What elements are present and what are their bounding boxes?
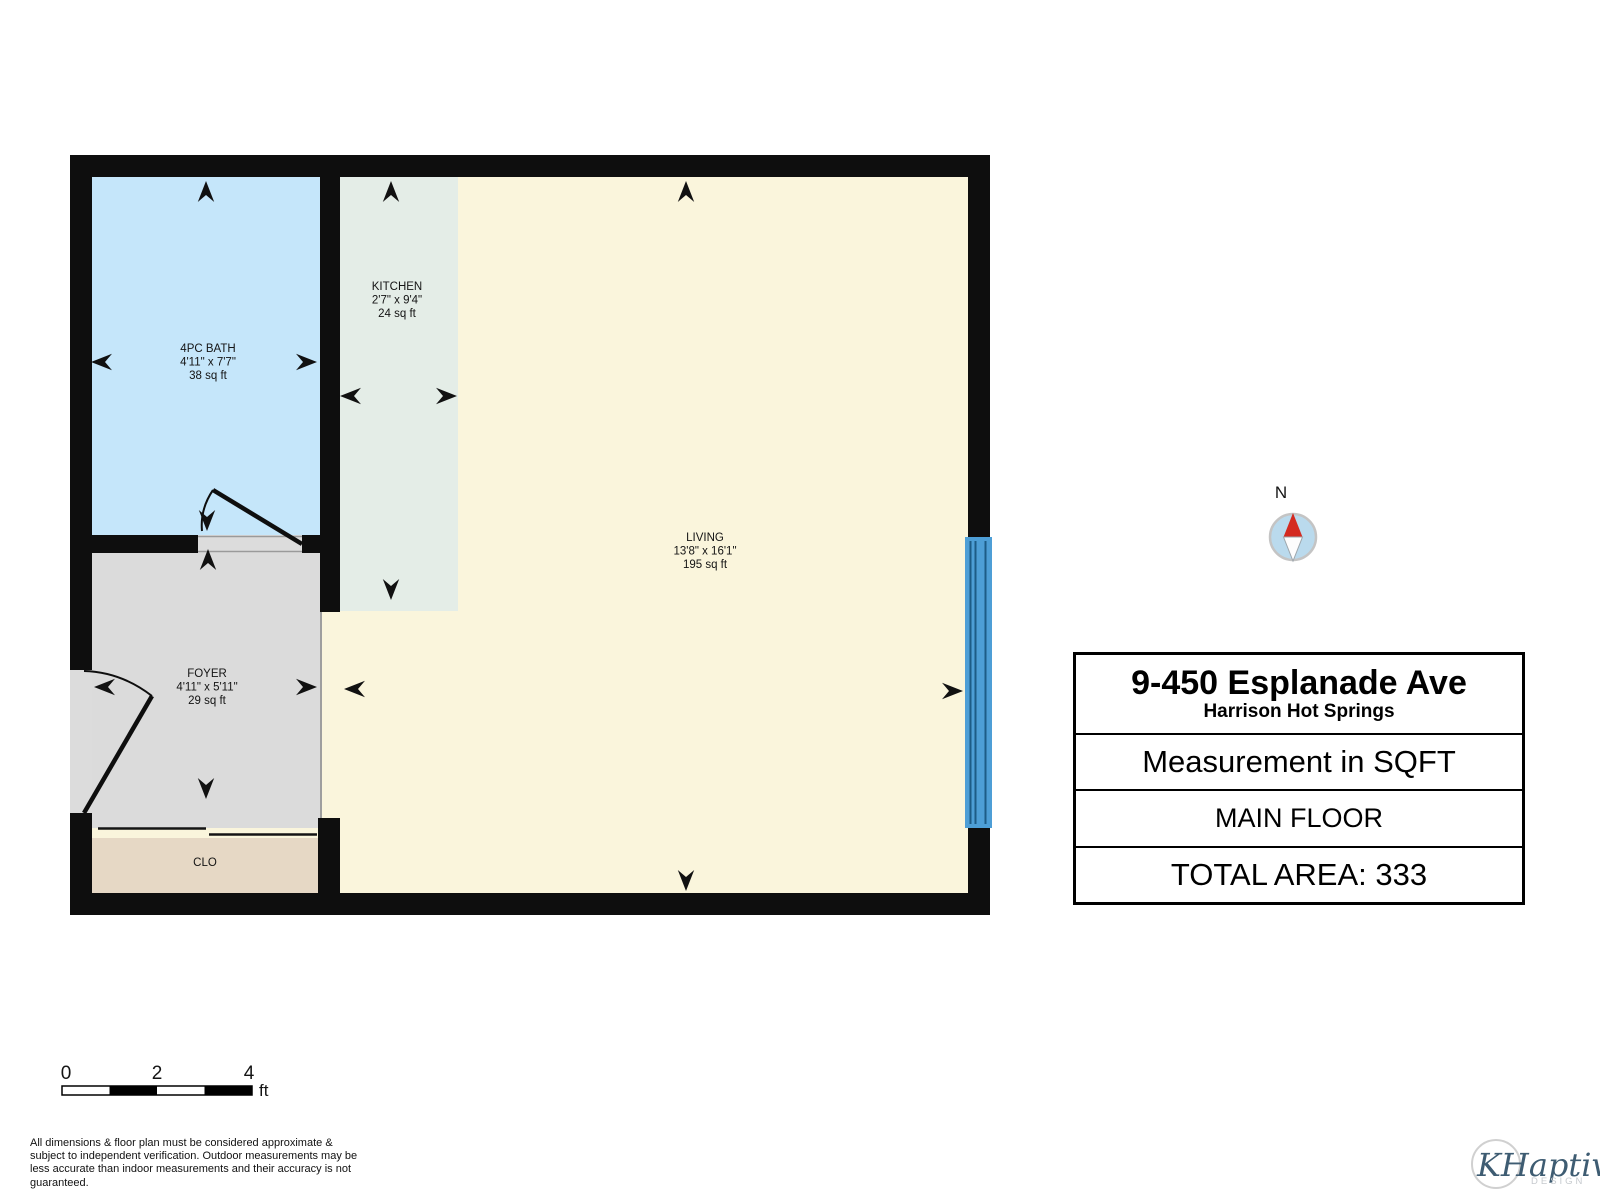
wall-top [70, 155, 990, 177]
scale-tick-4: 4 [244, 1063, 255, 1084]
window-sliding-door [965, 537, 992, 828]
bath-dims: 4'11" x 7'7" [180, 357, 236, 369]
scale-tick-2: 2 [152, 1063, 163, 1084]
disclaimer-line-2: subject to independent verification. Out… [30, 1150, 357, 1163]
disclaimer-text: All dimensions & floor plan must be cons… [30, 1137, 357, 1190]
kitchen-dims: 2'7" x 9'4" [372, 295, 422, 307]
scale-tick-0: 0 [61, 1063, 72, 1084]
compass-north-label: N [1275, 483, 1287, 502]
bath-area: 38 sq ft [189, 370, 228, 382]
living-label: LIVING [686, 532, 724, 544]
wall-closet-right [318, 818, 340, 915]
logo-subtitle: DESIGN [1531, 1176, 1585, 1187]
bath-label: 4PC BATH [180, 343, 235, 355]
kitchen-floor [340, 177, 458, 611]
foyer-area: 29 sq ft [188, 695, 227, 707]
wall-bottom [70, 893, 990, 915]
info-box-total-area-row: TOTAL AREA: 333 [1076, 846, 1522, 902]
city-line: Harrison Hot Springs [1076, 701, 1522, 723]
living-dims: 13'8" x 16'1" [673, 546, 736, 558]
info-box-floor-row: MAIN FLOOR [1076, 789, 1522, 846]
address-line: 9-450 Esplanade Ave [1076, 665, 1522, 701]
foyer-dims: 4'11" x 5'11" [176, 682, 237, 694]
page: 4PC BATH 4'11" x 7'7" 38 sq ft KITCHEN 2… [0, 0, 1600, 1200]
total-area-label: TOTAL AREA: 333 [1076, 857, 1522, 893]
foyer-living-divider [320, 612, 322, 818]
wall-bath-bottom-right [302, 535, 340, 553]
scale-bar-segment-black-2 [205, 1086, 253, 1095]
disclaimer-line-3: less accurate than indoor measurements a… [30, 1163, 357, 1176]
floor-label: MAIN FLOOR [1076, 803, 1522, 834]
scale-bar-segment-black-1 [110, 1086, 158, 1095]
disclaimer-line-4: guaranteed. [30, 1177, 357, 1190]
floor-plan-drawing: 4PC BATH 4'11" x 7'7" 38 sq ft KITCHEN 2… [0, 0, 1600, 1200]
disclaimer-line-1: All dimensions & floor plan must be cons… [30, 1137, 357, 1150]
info-box-measurement-row: Measurement in SQFT [1076, 733, 1522, 789]
info-box-address-row: 9-450 Esplanade Ave Harrison Hot Springs [1076, 655, 1522, 733]
wall-foyer-stub-left [70, 818, 92, 838]
measurement-label: Measurement in SQFT [1076, 744, 1522, 780]
kitchen-area: 24 sq ft [378, 308, 417, 320]
window-glass [965, 537, 992, 828]
wall-bath-bottom-left [70, 535, 198, 553]
wall-right-upper [968, 155, 990, 538]
scale-unit-label: ft [259, 1081, 269, 1100]
info-box: 9-450 Esplanade Ave Harrison Hot Springs… [1073, 652, 1525, 905]
compass: N [1270, 483, 1316, 561]
closet-label: CLO [193, 857, 217, 869]
kitchen-label: KITCHEN [372, 281, 422, 293]
living-area: 195 sq ft [683, 559, 728, 571]
bath-door-sill [198, 535, 302, 553]
wall-right-lower [968, 828, 990, 915]
entry-opening [70, 670, 92, 813]
foyer-label: FOYER [187, 668, 227, 680]
scale-bar: 0 2 4 ft [61, 1063, 269, 1100]
